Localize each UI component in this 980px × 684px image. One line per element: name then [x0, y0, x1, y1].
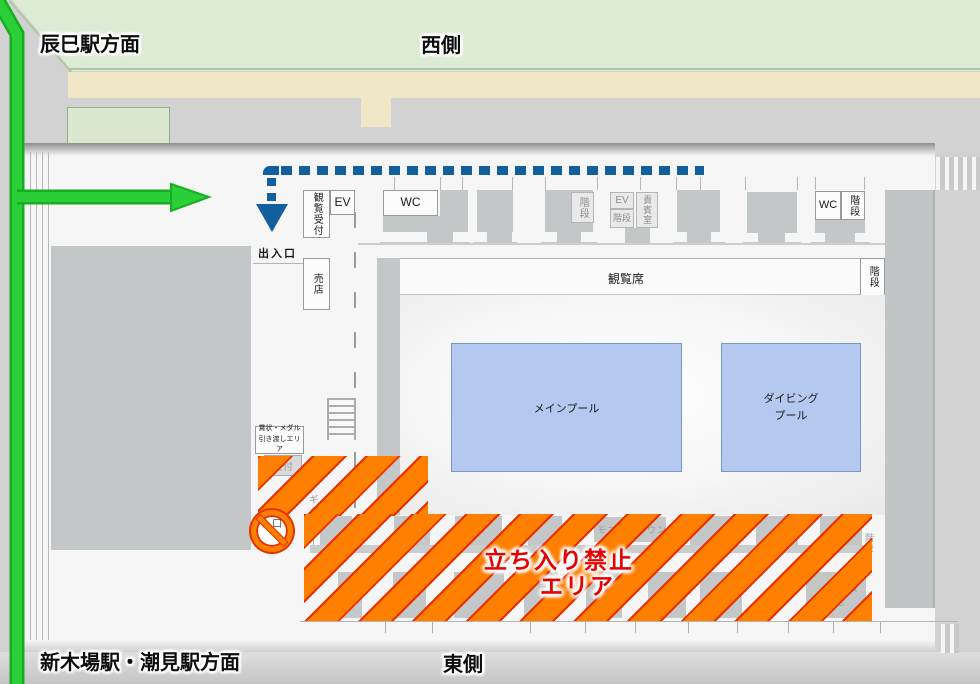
blue-route-corner [263, 166, 279, 175]
blue-route-horizontal [281, 166, 704, 175]
direction-west-side: 西側 [421, 29, 461, 58]
direction-shinkiba-shiomi-stations: 新木場駅・潮見駅方面 [40, 646, 240, 675]
direction-text: 東側 [443, 654, 483, 676]
direction-text: 西側 [421, 35, 461, 57]
blue-route-vertical [267, 178, 276, 205]
direction-text: 新木場駅・潮見駅方面 [40, 652, 240, 674]
green-route-arrow [0, 0, 980, 684]
blue-route-arrowhead [256, 204, 288, 232]
venue-floor-map: 観覧受付 EV WC 階段 EV 階段 貴賓室 WC 階段 出入口 売店 観覧席… [0, 0, 980, 684]
direction-tatsumi-station: 辰巳駅方面 [40, 28, 140, 57]
direction-text: 辰巳駅方面 [40, 34, 140, 56]
direction-east-side: 東側 [443, 648, 483, 677]
